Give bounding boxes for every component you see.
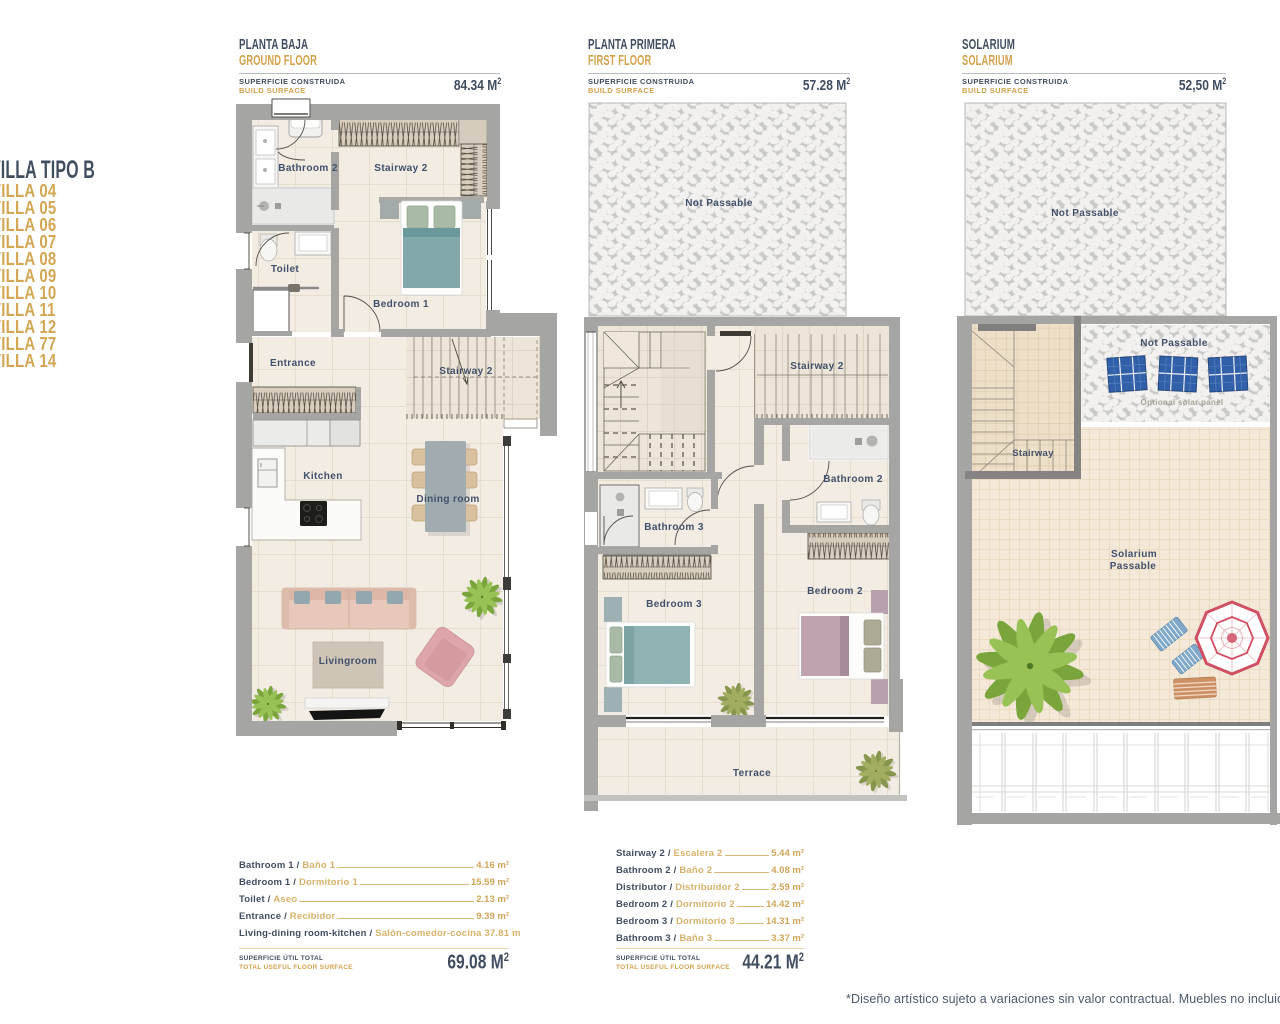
svg-text:Bedroom 3: Bedroom 3 bbox=[646, 599, 702, 610]
svg-text:Stairway 2: Stairway 2 bbox=[374, 163, 428, 174]
svg-text:Optional solar panel: Optional solar panel bbox=[1141, 398, 1224, 407]
svg-text:Terrace: Terrace bbox=[733, 768, 771, 779]
svg-text:Bathroom 2: Bathroom 2 bbox=[278, 163, 338, 174]
svg-text:Bathroom 2: Bathroom 2 bbox=[823, 474, 883, 485]
svg-text:Livingroom: Livingroom bbox=[319, 656, 377, 667]
svg-text:Not Passable: Not Passable bbox=[1051, 208, 1119, 219]
svg-text:Bedroom 1: Bedroom 1 bbox=[373, 299, 429, 310]
svg-text:Kitchen: Kitchen bbox=[303, 471, 342, 482]
svg-text:Stairway 2: Stairway 2 bbox=[439, 366, 493, 377]
svg-text:Bedroom 2: Bedroom 2 bbox=[807, 586, 863, 597]
svg-text:Not Passable: Not Passable bbox=[1140, 338, 1208, 349]
svg-text:Entrance: Entrance bbox=[270, 358, 316, 369]
svg-text:Toilet: Toilet bbox=[271, 264, 300, 275]
svg-text:Passable: Passable bbox=[1110, 561, 1157, 572]
svg-text:Bathroom 3: Bathroom 3 bbox=[644, 522, 704, 533]
svg-text:Stairway: Stairway bbox=[1012, 448, 1054, 459]
svg-text:Dining room: Dining room bbox=[416, 494, 479, 505]
svg-text:Solarium: Solarium bbox=[1111, 549, 1157, 560]
svg-text:Not Passable: Not Passable bbox=[685, 198, 753, 209]
svg-text:Stairway 2: Stairway 2 bbox=[790, 361, 844, 372]
